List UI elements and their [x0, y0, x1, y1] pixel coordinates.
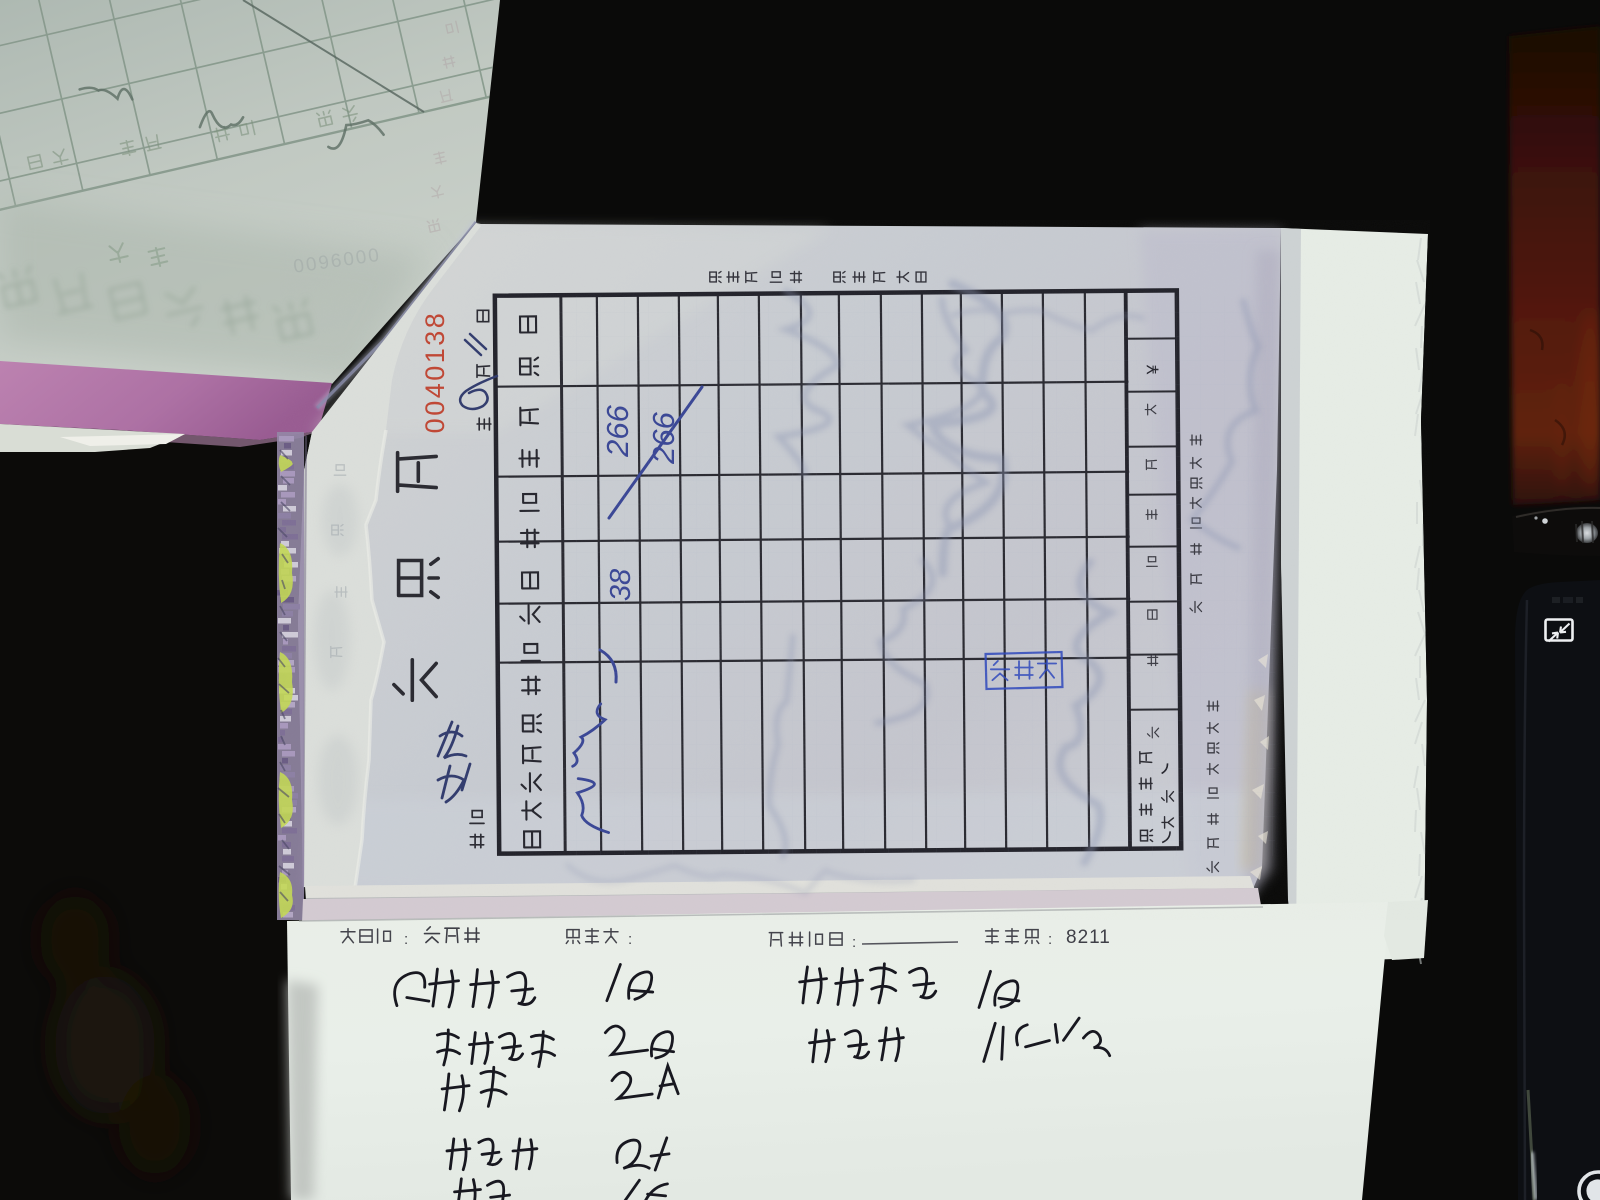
svg-text::: : — [1048, 931, 1052, 948]
svg-text::: : — [852, 934, 856, 951]
svg-text::: : — [404, 931, 408, 948]
svg-text::: : — [628, 931, 632, 948]
svg-text:8211: 8211 — [1066, 927, 1111, 948]
